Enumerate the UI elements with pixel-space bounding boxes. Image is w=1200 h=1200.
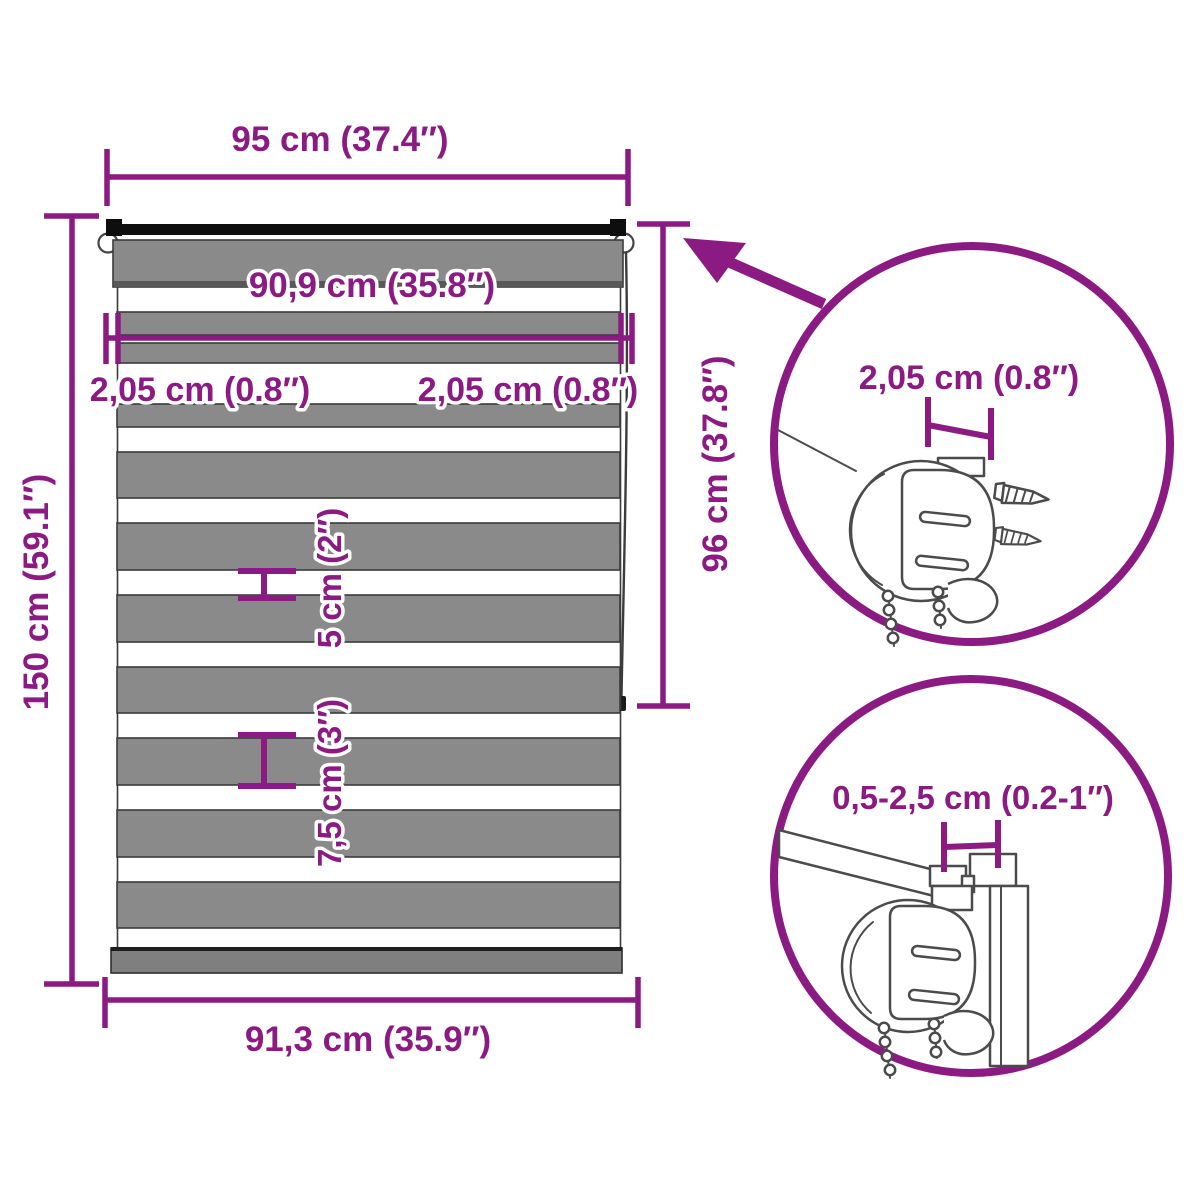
detail-circle-top: 2,05 cm (0.8″) (774, 246, 1170, 646)
roller-blind-front-view (99, 219, 634, 973)
dimension-roll-height: 96 cm (37.8″) (637, 222, 735, 707)
rail-hook (944, 1011, 993, 1054)
dimension-label: 96 cm (37.8″) (696, 355, 735, 572)
top-tube (106, 224, 626, 235)
bottom-rail (111, 948, 622, 973)
detail-label-bottom: 0,5-2,5 cm (0.2-1″) (832, 779, 1114, 816)
clamp-part (930, 866, 966, 886)
blind-dimension-drawing: 95 cm (37.4″) 90,9 cm (35.8″) 2,05 cm (0… (0, 0, 1200, 1200)
fabric-stripe (117, 452, 620, 498)
fabric-stripe (117, 595, 620, 642)
bottom-rail-edge (111, 947, 622, 951)
dimension-side-gap-right: 2,05 cm (0.8″) (418, 371, 638, 409)
detail-pointer-arrow (683, 238, 824, 304)
fabric-stripe (117, 810, 620, 857)
dimension-label: 95 cm (37.4″) (231, 120, 448, 159)
detail-label-top: 2,05 cm (0.8″) (859, 359, 1079, 397)
dimension-line (944, 845, 998, 847)
product-dimension-diagram: 95 cm (37.4″) 90,9 cm (35.8″) 2,05 cm (0… (0, 0, 1200, 1200)
rail-hook (948, 579, 997, 622)
fabric-stripe (117, 738, 620, 785)
dimension-top-width: 95 cm (37.4″) (107, 120, 628, 206)
mounting-screw (994, 482, 1050, 508)
dimension-bottom-width: 91,3 cm (35.9″) (105, 977, 638, 1059)
dimension-side-gap-left: 2,05 cm (0.8″) (90, 371, 310, 409)
mounting-screw (994, 526, 1042, 548)
arrow-line (729, 262, 824, 304)
dimension-label: 7,5 cm (3″) (311, 699, 348, 867)
bracket-cap (902, 470, 994, 589)
clamp-illustration (779, 830, 1028, 1078)
dimension-line (928, 425, 991, 437)
window-frame-board (779, 830, 938, 897)
blind-edge-line (778, 430, 856, 471)
dimension-label: 150 cm (59.1″) (17, 474, 56, 711)
dimension-marker (928, 397, 991, 460)
dimension-label: 90,9 cm (35.8″) (249, 266, 495, 305)
fabric-stripe (117, 523, 620, 570)
bracket-illustration (778, 430, 1050, 646)
clamp-part (970, 854, 1016, 886)
fabric-stripe (117, 312, 620, 335)
fabric-stripe (117, 343, 620, 363)
dimension-label: 5 cm (2″) (311, 508, 348, 649)
dimension-label: 91,3 cm (35.9″) (245, 1020, 491, 1059)
window-frame-post (990, 886, 1028, 1066)
fabric-stripe (117, 667, 620, 713)
detail-circle-bottom: 0,5-2,5 cm (0.2-1″) (774, 679, 1168, 1078)
dimension-total-height: 150 cm (59.1″) (17, 215, 99, 985)
fabric-stripe (117, 882, 620, 928)
